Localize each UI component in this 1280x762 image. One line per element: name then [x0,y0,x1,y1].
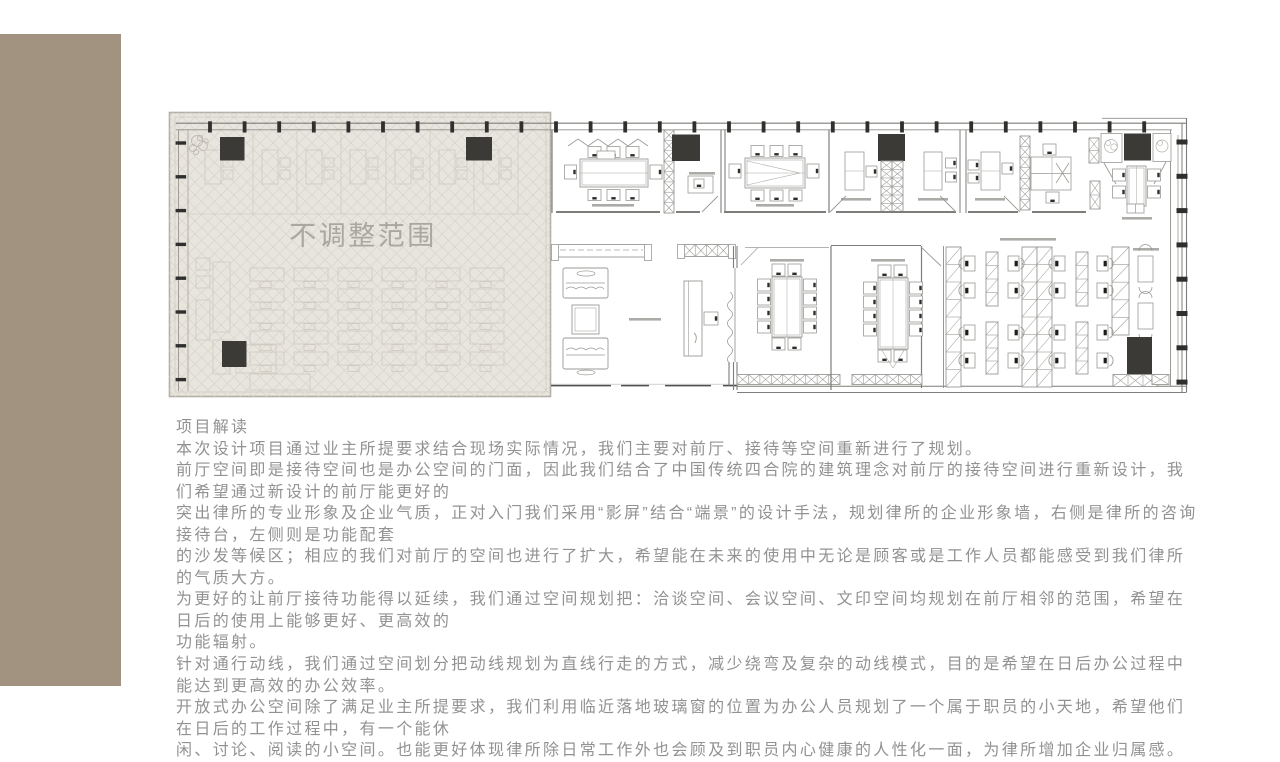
svg-text:不调整范围: 不调整范围 [289,221,437,251]
